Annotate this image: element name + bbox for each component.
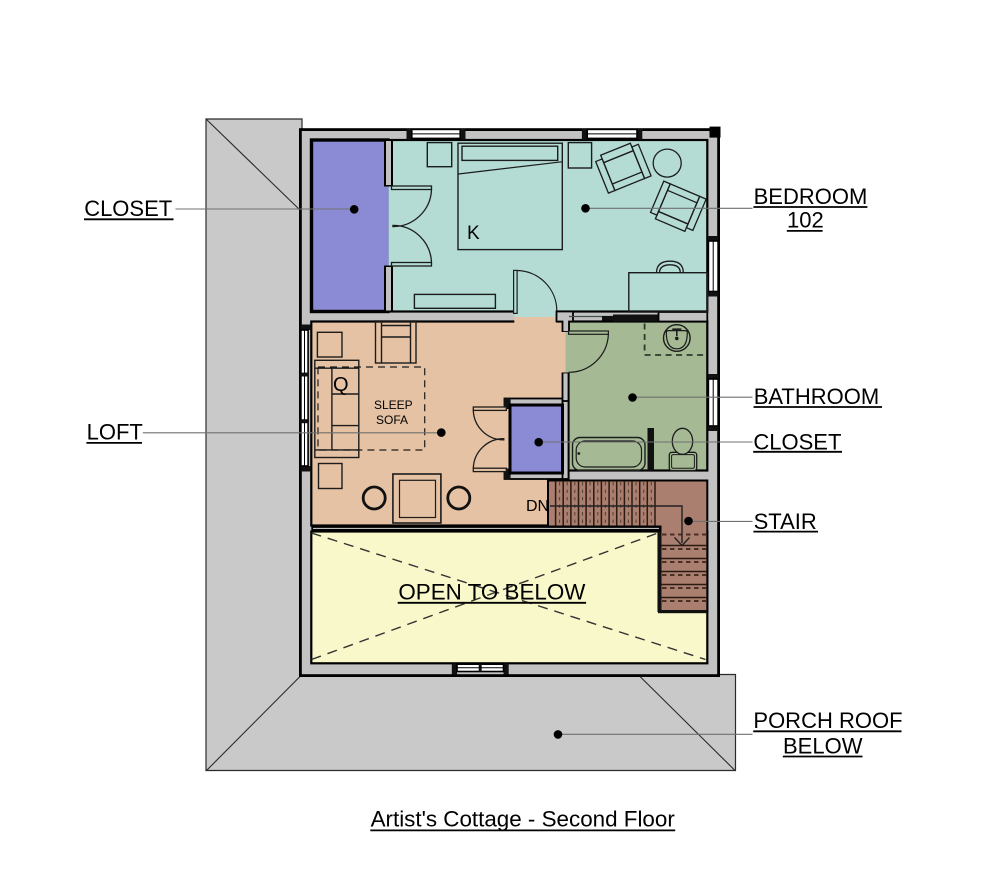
svg-text:LOFT: LOFT	[87, 420, 143, 445]
svg-text:CLOSET: CLOSET	[753, 429, 841, 454]
svg-text:OPEN TO BELOW: OPEN TO BELOW	[398, 580, 586, 605]
svg-text:BATHROOM: BATHROOM	[754, 384, 879, 409]
svg-text:STAIR: STAIR	[754, 509, 817, 534]
svg-text:102: 102	[787, 208, 824, 233]
svg-text:BELOW: BELOW	[783, 733, 863, 758]
svg-text:CLOSET: CLOSET	[84, 196, 172, 221]
svg-text:BEDROOM: BEDROOM	[754, 184, 868, 209]
svg-text:K: K	[467, 223, 480, 244]
svg-text:DN: DN	[526, 498, 549, 515]
svg-text:PORCH ROOF: PORCH ROOF	[753, 708, 902, 733]
svg-text:SOFA: SOFA	[376, 413, 408, 427]
svg-text:SLEEP: SLEEP	[374, 398, 413, 412]
svg-text:Q: Q	[333, 374, 349, 396]
svg-text:Artist's Cottage - Second Floo: Artist's Cottage - Second Floor	[371, 807, 676, 832]
